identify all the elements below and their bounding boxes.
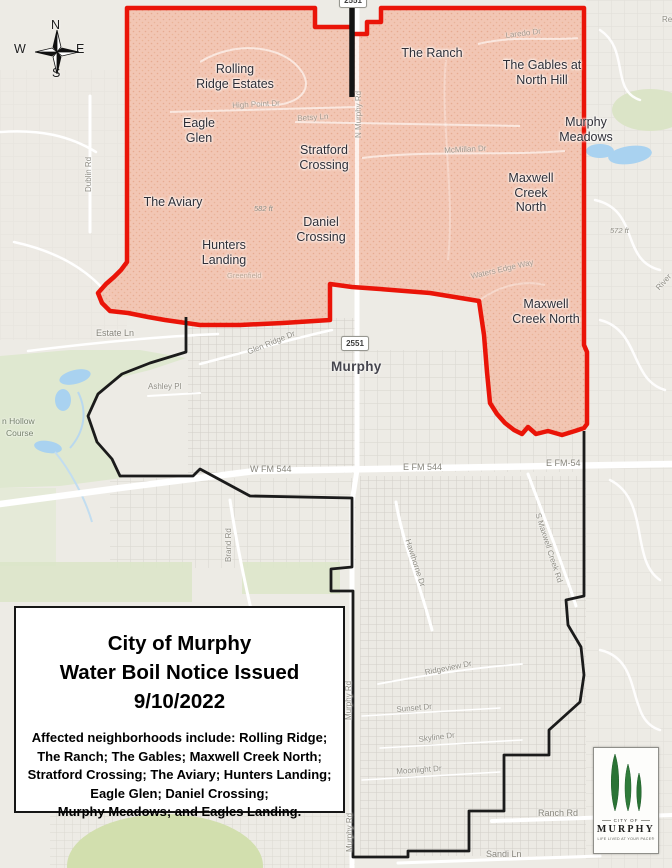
road-label-greenfield: Greenfield — [227, 271, 262, 280]
neighborhood-label-maxwell-north-2: Maxwell Creek North — [498, 297, 594, 326]
neighborhood-label-stratford: Stratford Crossing — [292, 143, 356, 172]
logo-left-rule — [602, 820, 611, 821]
golf-course-label-line1: n Hollow — [2, 416, 35, 426]
neighborhood-label-murphy-meadows: Murphy Meadows — [550, 115, 622, 144]
road-label-e-fm544: E FM 544 — [403, 462, 442, 472]
compass-rose: N S W E — [12, 10, 104, 94]
road-label-ranch-rd: Ranch Rd — [538, 808, 578, 818]
logo-trees-icon — [603, 753, 649, 815]
road-label-murphy-rd-1: Murphy Rd — [344, 681, 353, 720]
road-label-brand: Brand Rd — [224, 528, 233, 562]
logo-city-of-text: CITY OF — [614, 818, 639, 823]
notice-body-line2: The Ranch; The Gables; Maxwell Creek Nor… — [16, 748, 343, 766]
logo-right-rule — [641, 820, 650, 821]
road-label-w-fm544: W FM 544 — [250, 464, 292, 474]
neighborhood-label-gables: The Gables at North Hill — [496, 58, 588, 87]
road-label-n-murphy: N Murphy Rd — [354, 91, 363, 138]
neighborhood-label-rolling-ridge: Rolling Ridge Estates — [170, 62, 300, 91]
boil-notice-map: N S W E 2551 2551 Rolling Ridge Estates … — [0, 0, 672, 868]
elevation-label-582: 582 ft — [254, 204, 273, 213]
notice-body: Affected neighborhoods include: Rolling … — [16, 729, 343, 821]
compass-star-icon — [35, 30, 79, 74]
golf-course-label-line2: Course — [6, 428, 33, 438]
logo-murphy-text: MURPHY — [597, 824, 655, 835]
neighborhood-label-hunters: Hunters Landing — [196, 238, 252, 267]
road-label-estate: Estate Ln — [96, 328, 134, 338]
notice-body-line1: Affected neighborhoods include: Rolling … — [16, 729, 343, 747]
neighborhood-label-eagle-glen: Eagle Glen — [176, 116, 222, 145]
road-label-dublin: Dublin Rd — [84, 157, 93, 192]
notice-title-line2: Water Boil Notice Issued — [16, 658, 343, 687]
highway-shield-2551-mid: 2551 — [341, 336, 369, 351]
neighborhood-label-aviary: The Aviary — [138, 195, 208, 210]
city-of-murphy-logo: CITY OF MURPHY LIFE LIVED AT YOUR PACE® — [593, 747, 659, 854]
logo-city-of-row: CITY OF — [602, 818, 651, 823]
road-label-sandi: Sandi Ln — [486, 849, 522, 859]
compass-west-label: W — [14, 42, 26, 56]
elevation-label-572: 572 ft — [610, 226, 629, 235]
road-label-e-fm544-right: E FM-54 — [546, 458, 581, 468]
notice-body-line3: Stratford Crossing; The Aviary; Hunters … — [16, 766, 343, 784]
logo-tagline-text: LIFE LIVED AT YOUR PACE® — [598, 837, 655, 841]
notice-body-line4: Eagle Glen; Daniel Crossing; — [16, 785, 343, 803]
road-label-murphy-rd-2: Murphy Rd — [345, 813, 354, 852]
notice-title-line1: City of Murphy — [16, 629, 343, 658]
road-label-ashley: Ashley Pl — [148, 382, 181, 391]
highway-shield-2551-top: 2551 — [339, 0, 367, 8]
road-label-re-partial: Re — [662, 15, 672, 24]
neighborhood-label-daniel: Daniel Crossing — [290, 215, 352, 244]
neighborhood-label-the-ranch: The Ranch — [396, 46, 468, 61]
neighborhood-label-maxwell-north-1: Maxwell Creek North — [500, 171, 562, 215]
notice-body-line5: Murphy Meadows; and Eagles Landing. — [16, 803, 343, 821]
city-name-label: Murphy — [331, 359, 382, 374]
notice-title-line3: 9/10/2022 — [16, 687, 343, 716]
boil-notice-box: City of Murphy Water Boil Notice Issued … — [14, 606, 345, 813]
